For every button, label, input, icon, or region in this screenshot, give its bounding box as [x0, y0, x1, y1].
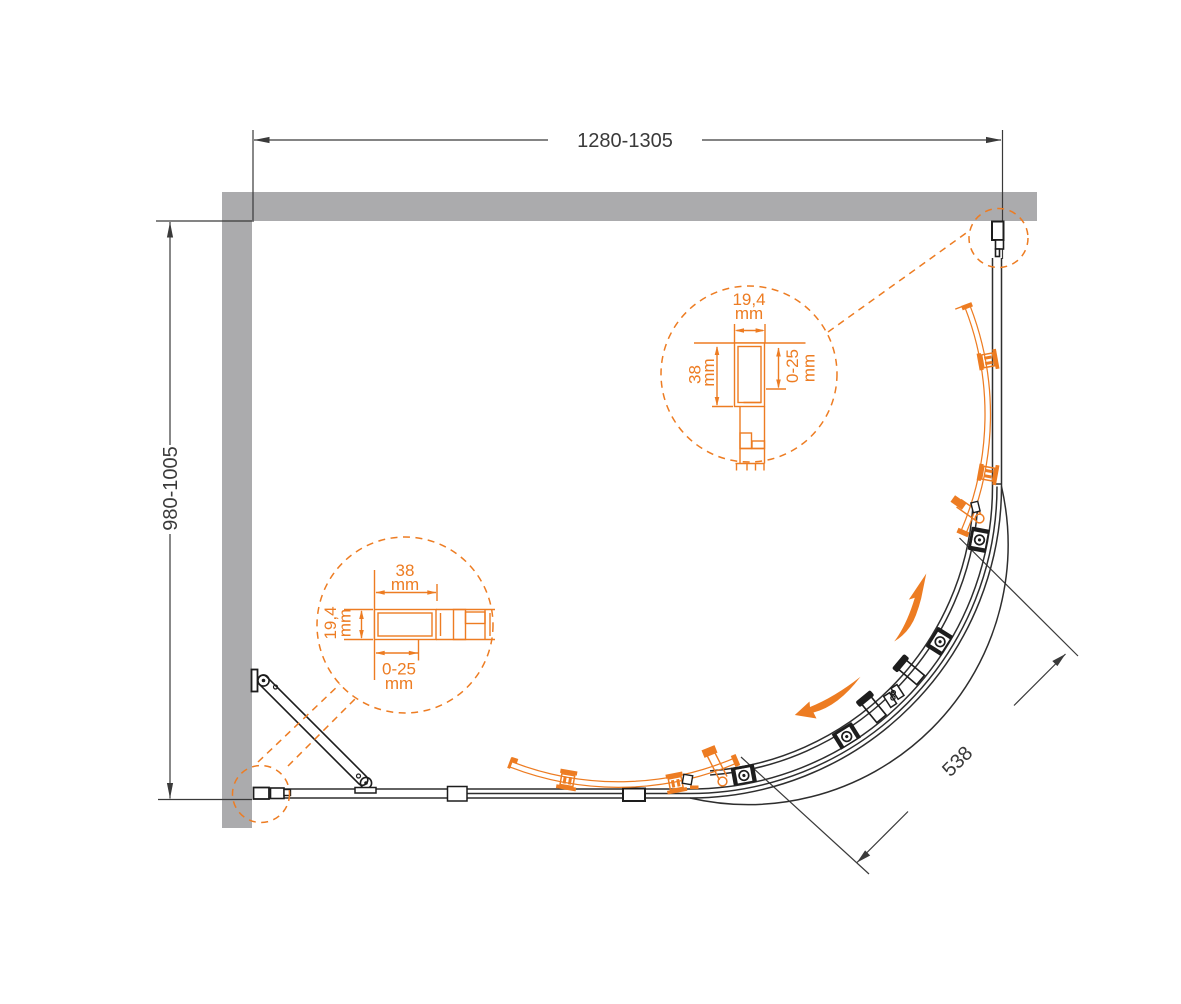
svg-text:980-1005: 980-1005 [160, 446, 182, 531]
svg-text:mm: mm [699, 358, 718, 386]
svg-text:mm: mm [800, 354, 819, 382]
svg-text:1280-1305: 1280-1305 [577, 130, 673, 152]
svg-text:mm: mm [735, 304, 763, 323]
svg-text:mm: mm [391, 575, 419, 594]
svg-text:mm: mm [385, 674, 413, 693]
svg-text:mm: mm [336, 609, 355, 637]
